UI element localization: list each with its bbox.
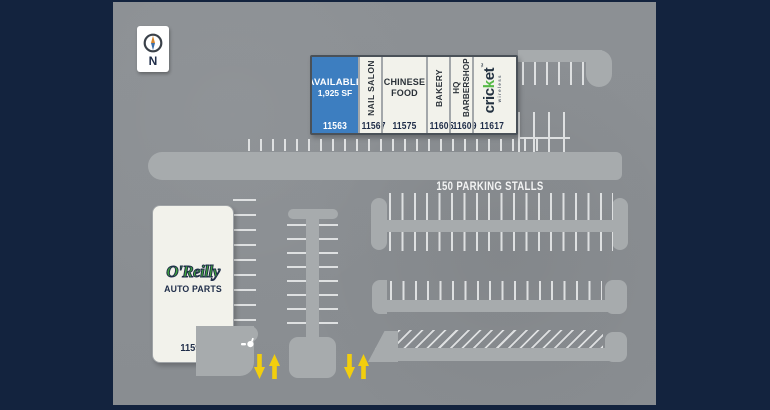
compass-north-icon [142, 32, 164, 54]
unit-chinese-food-label: CHINESE FOOD [384, 77, 425, 100]
center-row-stalls-right [319, 224, 338, 336]
row-a-spine [379, 220, 620, 232]
row-b-spine [374, 300, 614, 312]
center-row-stalls-left [287, 224, 306, 336]
oreilly-logo: O'Reilly [153, 262, 233, 282]
unit-nail-salon: NAIL SALON 11567 [358, 57, 381, 133]
compass: N [137, 26, 169, 72]
monument-sign-icon [241, 337, 254, 350]
unit-available-label: AVAILABLE 1,925 SF [312, 57, 358, 119]
unit-hq-barbershop: HQ BARBERSHOP 11609 [449, 57, 472, 133]
unit-hq-barbershop-label: HQ BARBERSHOP [452, 59, 471, 118]
oreilly-tagline: AUTO PARTS [156, 284, 230, 295]
unit-available-number: 11563 [315, 121, 354, 132]
unit-chinese-food: CHINESE FOOD 11575 [381, 57, 426, 133]
cricket-wordmark: cricket™ [482, 63, 497, 113]
wrap-aisle-stalls [522, 62, 586, 85]
cricket-wireless-label: wireless [498, 63, 503, 113]
unit-nail-salon-label: NAIL SALON [366, 60, 376, 116]
unit-cricket-number: 11617 [477, 121, 508, 132]
oreilly-side-stalls [233, 199, 256, 339]
row-b-stalls [390, 281, 602, 300]
unit-bakery: BAKERY 11605 [426, 57, 449, 133]
site-plan-panel: N AVAILABLE 1,925 SF 11563 NAIL SALON 11… [113, 2, 656, 405]
row-c-angled-stalls [398, 330, 603, 348]
entrance-island [289, 337, 336, 378]
storefront-stalls [248, 139, 548, 151]
unit-cricket: cricket™ wireless 11617 [472, 57, 510, 133]
entrance-drive-lower [196, 326, 254, 376]
unit-chinese-food-number: 11575 [386, 121, 423, 132]
entrance-arrow-down-icon [254, 354, 265, 379]
entrance-arrow-up-icon [269, 354, 280, 379]
unit-bakery-number: 11605 [430, 121, 448, 132]
unit-nail-salon-number: 11567 [362, 121, 380, 132]
unit-available: AVAILABLE 1,925 SF 11563 [312, 57, 358, 133]
entrance-arrow-down-icon [344, 354, 355, 379]
retail-strip-building: AVAILABLE 1,925 SF 11563 NAIL SALON 1156… [310, 55, 518, 135]
site-plan-canvas: N AVAILABLE 1,925 SF 11563 NAIL SALON 11… [0, 0, 770, 410]
parking-stalls-label: 150 PARKING STALLS [394, 179, 586, 193]
row-c-spine [375, 348, 615, 361]
unit-bakery-label: BAKERY [434, 69, 444, 107]
cricket-logo: cricket™ wireless [482, 63, 503, 113]
main-drive-aisle [148, 152, 622, 180]
row-a-stalls-bottom [389, 232, 613, 251]
row-a-stalls-top [389, 193, 613, 220]
center-row-spine [306, 210, 319, 340]
compass-label: N [149, 55, 158, 67]
unit-hq-barbershop-number: 11609 [453, 121, 471, 132]
wrap-drive-aisle-end [586, 50, 612, 87]
entrance-arrow-up-icon [358, 354, 369, 379]
